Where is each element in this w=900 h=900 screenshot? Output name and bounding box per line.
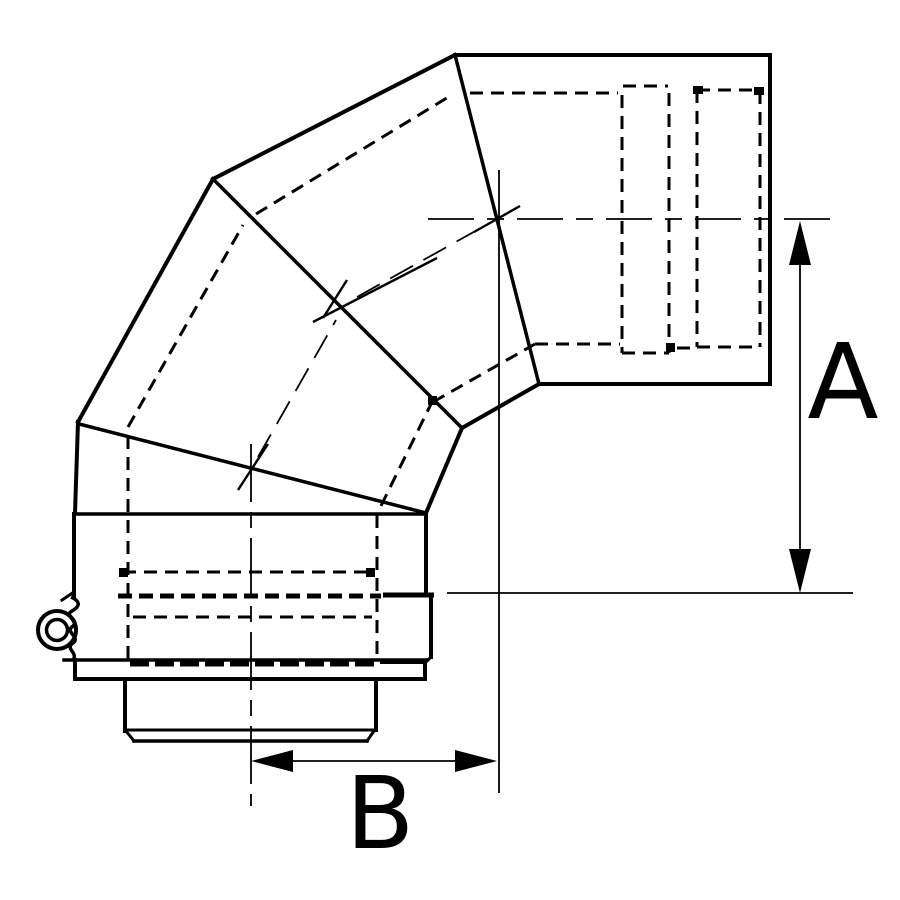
joint-line-1 — [79, 424, 426, 513]
part-outline — [62, 55, 770, 741]
hidden-line — [128, 225, 243, 427]
dimension-b-arrow-left-icon — [251, 750, 293, 772]
end-marker — [119, 568, 128, 577]
dimension-b: B — [251, 750, 497, 872]
segment3-inner-edge — [426, 428, 462, 513]
segment2-axis — [357, 224, 488, 297]
elbow-pipe-technical-drawing: A B — [0, 0, 900, 900]
crimped-band-edges — [118, 595, 434, 664]
end-marker — [366, 568, 375, 577]
dimension-a-arrow-up-icon — [789, 221, 811, 265]
spigot-chamfer-right — [367, 731, 374, 741]
dimension-a: A — [789, 221, 879, 593]
hidden-line — [256, 96, 450, 214]
hidden-line — [377, 400, 433, 514]
technical-drawing-page: A B — [0, 0, 900, 900]
segment3-outer-edge — [78, 179, 213, 422]
pipe-left-edge-upper — [75, 422, 78, 513]
dimension-a-label: A — [807, 321, 878, 443]
joint-line-2 — [215, 181, 462, 428]
segment2-inner-edge — [462, 384, 539, 428]
end-marker — [693, 86, 703, 94]
hidden-inner-lines — [123, 86, 760, 660]
segment2-outer-edge — [213, 55, 455, 179]
dimension-a-arrow-down-icon — [789, 549, 811, 593]
dimension-b-label: B — [346, 755, 415, 872]
end-marker — [754, 87, 764, 95]
clamp-screw-assembly — [38, 597, 78, 661]
hidden-line-end-markers — [119, 86, 764, 577]
dimension-b-arrow-right-icon — [455, 750, 497, 772]
axis-tick — [313, 258, 437, 322]
end-marker — [666, 343, 675, 352]
segment3-axis — [258, 320, 336, 457]
clamp-screw-inner-ring — [47, 620, 68, 641]
